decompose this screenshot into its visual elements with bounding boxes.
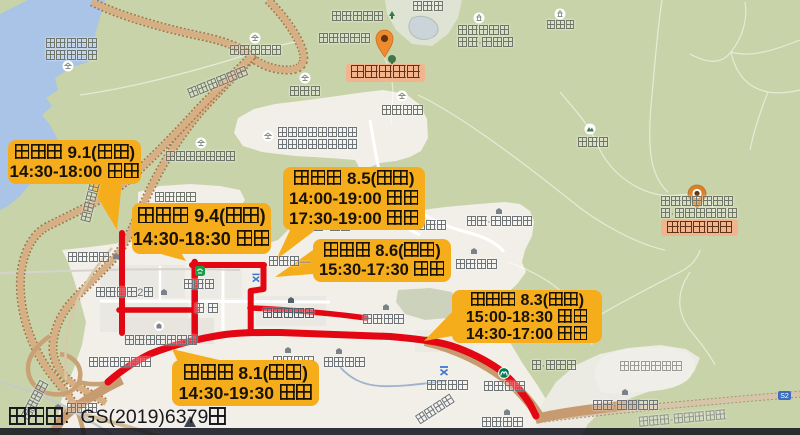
svg-text:S2: S2 [780,393,789,400]
